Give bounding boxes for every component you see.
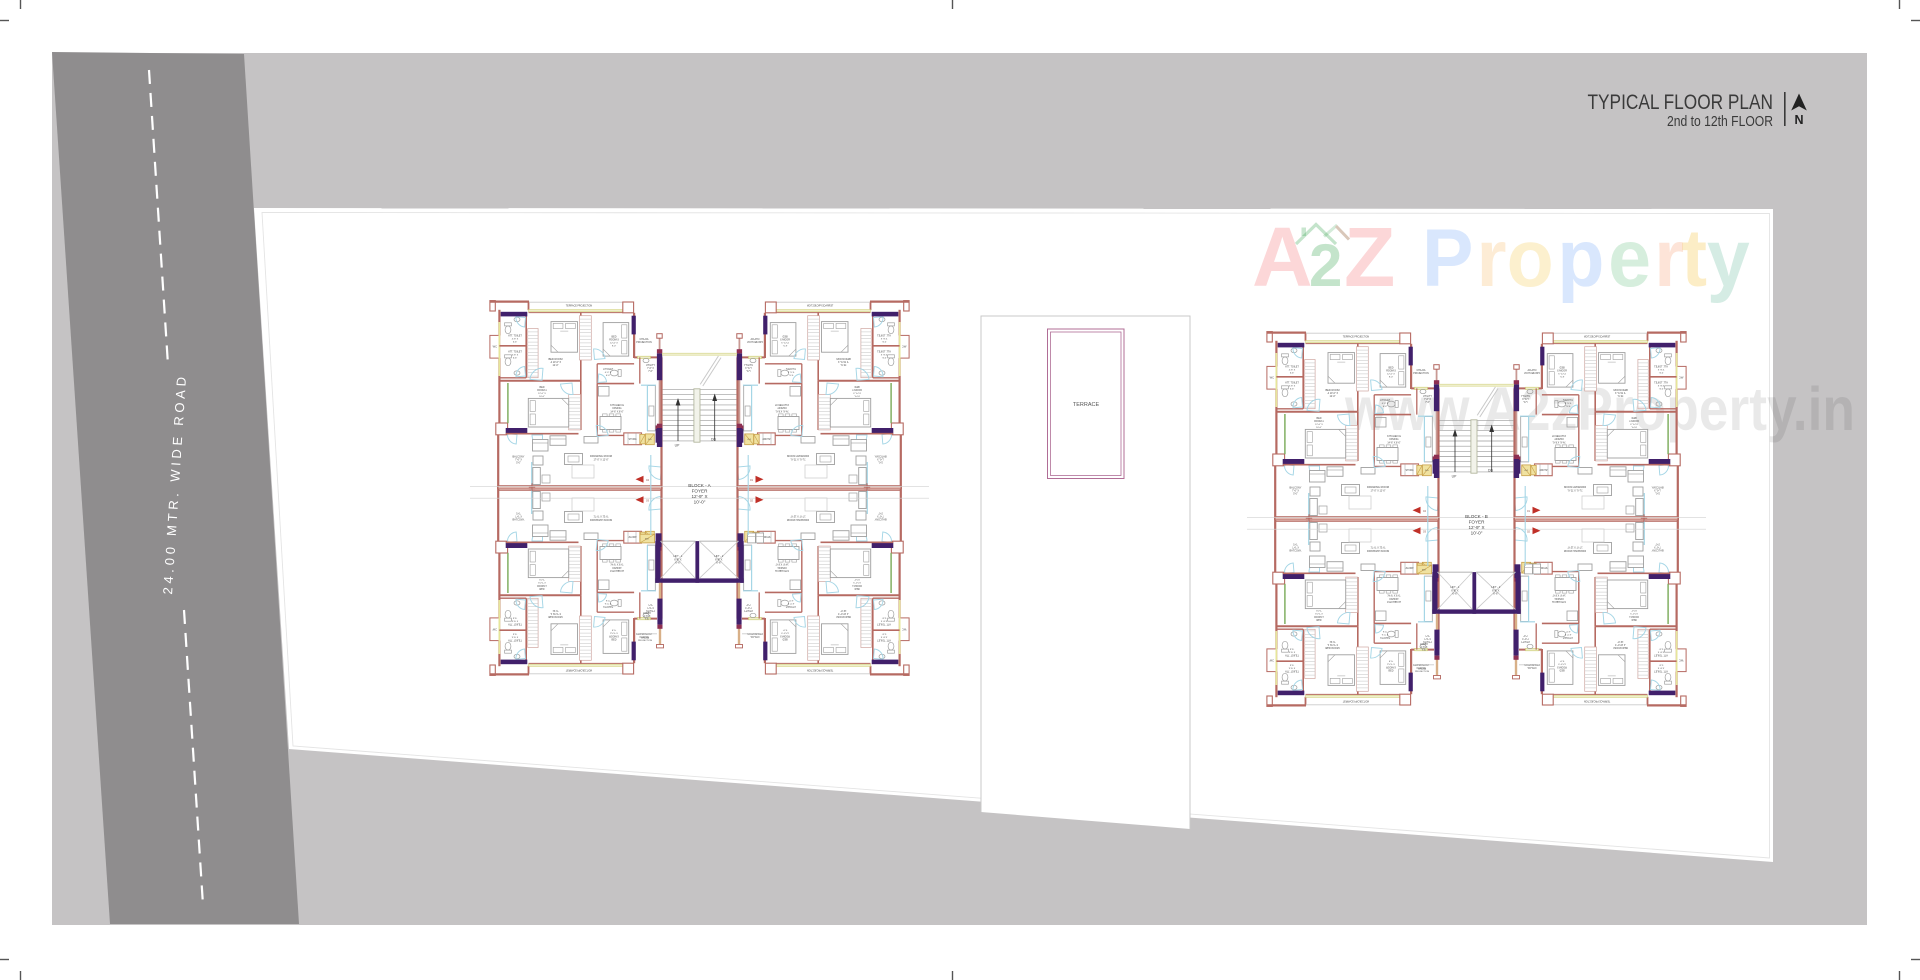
svg-text:12'-9" X: 12'-9" X	[691, 494, 707, 499]
svg-text:t: t	[1681, 212, 1707, 304]
svg-text:BLOCK - A: BLOCK - A	[688, 483, 711, 488]
svg-text:Z: Z	[1344, 210, 1395, 304]
svg-text:N: N	[1794, 113, 1803, 127]
svg-text:p: p	[1557, 212, 1604, 304]
svg-text:y: y	[1707, 212, 1750, 304]
svg-text:FOYER: FOYER	[1469, 520, 1486, 525]
svg-text:FOYER: FOYER	[692, 489, 709, 494]
svg-text:r: r	[1654, 212, 1684, 304]
svg-text:2nd to 12th FLOOR: 2nd to 12th FLOOR	[1667, 114, 1773, 130]
svg-text:e: e	[1608, 212, 1651, 304]
svg-text:10'-0": 10'-0"	[694, 500, 706, 505]
svg-text:2: 2	[1309, 232, 1342, 299]
svg-text:r: r	[1477, 212, 1507, 304]
svg-text:TYPICAL FLOOR PLAN: TYPICAL FLOOR PLAN	[1588, 90, 1774, 114]
svg-text:10'-0": 10'-0"	[1471, 531, 1483, 536]
svg-text:P: P	[1422, 212, 1473, 304]
svg-text:BLOCK - B: BLOCK - B	[1465, 514, 1488, 519]
svg-text:o: o	[1507, 212, 1554, 304]
svg-text:TERRACE: TERRACE	[1073, 402, 1100, 408]
svg-text:12'-9" X: 12'-9" X	[1468, 525, 1484, 530]
svg-text:A: A	[1252, 210, 1311, 304]
